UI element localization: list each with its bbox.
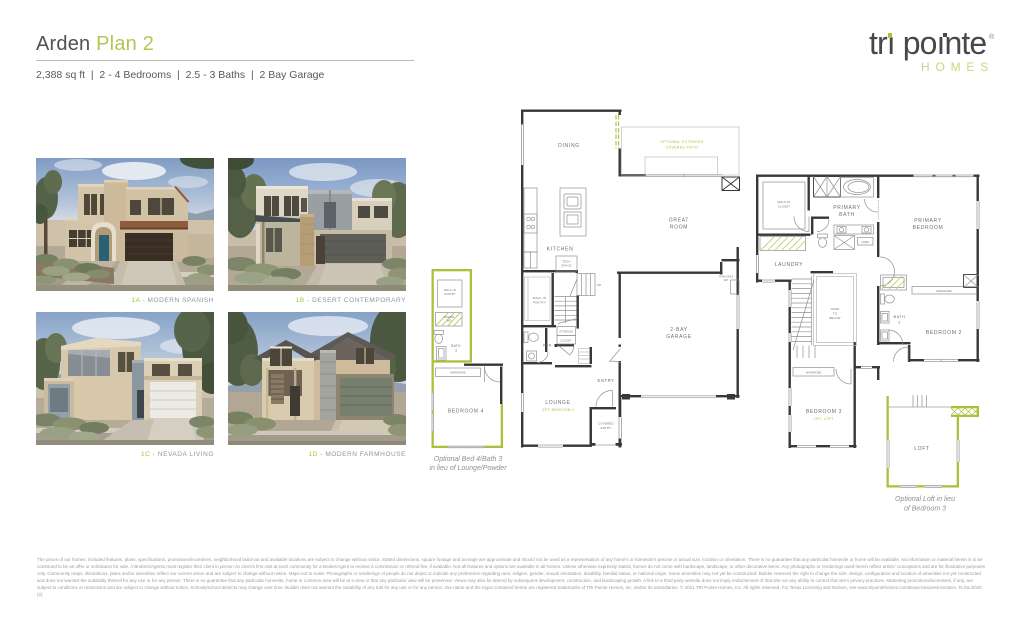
svg-text:OPEN: OPEN: [831, 307, 840, 311]
svg-text:BATH: BATH: [451, 344, 461, 348]
svg-text:BATH: BATH: [839, 212, 855, 218]
svg-text:3: 3: [455, 349, 457, 353]
svg-text:CLOSET: CLOSET: [561, 340, 572, 343]
svg-text:PDR: PDR: [543, 344, 552, 348]
svg-text:BEDROOM 4: BEDROOM 4: [448, 409, 484, 415]
svg-text:COVERED: COVERED: [598, 422, 614, 426]
svg-text:OPT. BEDROOM 4: OPT. BEDROOM 4: [542, 408, 574, 412]
svg-text:KITCHEN: KITCHEN: [547, 247, 574, 253]
svg-text:ENTRY: ENTRY: [601, 426, 612, 430]
svg-text:PANTRY: PANTRY: [533, 301, 546, 305]
svg-text:BEDROOM: BEDROOM: [913, 225, 944, 231]
svg-text:BATH: BATH: [894, 314, 906, 319]
svg-text:W/D: W/D: [447, 321, 452, 323]
svg-text:LAUNDRY: LAUNDRY: [775, 262, 804, 268]
svg-text:STORAGE: STORAGE: [559, 331, 573, 334]
svg-text:GARAGE: GARAGE: [666, 334, 692, 340]
svg-text:TO: TO: [833, 312, 838, 316]
svg-text:BEDROOM 3: BEDROOM 3: [806, 409, 842, 415]
svg-text:ROOM: ROOM: [670, 225, 688, 231]
svg-text:WARDROBE: WARDROBE: [450, 372, 466, 375]
svg-text:ENTRY: ENTRY: [597, 378, 614, 383]
svg-text:WARDROBE: WARDROBE: [806, 371, 822, 374]
svg-text:DINING: DINING: [558, 143, 580, 149]
svg-text:BEDROOM 2: BEDROOM 2: [926, 330, 962, 336]
svg-text:STACKED: STACKED: [444, 316, 455, 319]
svg-text:CLOSET: CLOSET: [778, 205, 790, 209]
svg-text:LINEN: LINEN: [861, 241, 869, 244]
svg-text:of Bedroom 3: of Bedroom 3: [904, 506, 946, 513]
svg-text:WALK-IN: WALK-IN: [533, 296, 547, 300]
svg-text:COVERED PATIO: COVERED PATIO: [666, 146, 699, 150]
svg-text:LOFT: LOFT: [914, 446, 930, 452]
svg-text:PRIMARY: PRIMARY: [914, 218, 942, 224]
svg-text:BELOW: BELOW: [829, 316, 840, 320]
svg-text:TECH: TECH: [562, 260, 571, 264]
svg-text:PANTRY: PANTRY: [444, 292, 456, 296]
svg-text:WARDROBE: WARDROBE: [936, 290, 952, 293]
svg-text:OPTIONAL EXTENDED: OPTIONAL EXTENDED: [660, 140, 703, 144]
svg-text:in lieu of Lounge/Powder: in lieu of Lounge/Powder: [429, 465, 507, 472]
svg-text:Optional Loft in lieu: Optional Loft in lieu: [895, 496, 955, 503]
svg-text:UP: UP: [597, 283, 601, 287]
svg-text:SPACE: SPACE: [561, 264, 571, 268]
svg-text:WALK-IN: WALK-IN: [444, 288, 456, 292]
svg-text:Optional Bed 4/Bath 3: Optional Bed 4/Bath 3: [434, 456, 503, 463]
svg-text:2-BAY: 2-BAY: [670, 327, 688, 333]
svg-text:2: 2: [898, 320, 901, 325]
svg-text:GREAT: GREAT: [669, 218, 689, 224]
svg-text:LOUNGE: LOUNGE: [545, 400, 570, 406]
svg-text:WALK-IN: WALK-IN: [778, 200, 791, 204]
svg-text:PRIMARY: PRIMARY: [833, 205, 861, 211]
svg-text:OPT. LOFT: OPT. LOFT: [814, 417, 833, 421]
svg-text:WH: WH: [724, 279, 729, 282]
